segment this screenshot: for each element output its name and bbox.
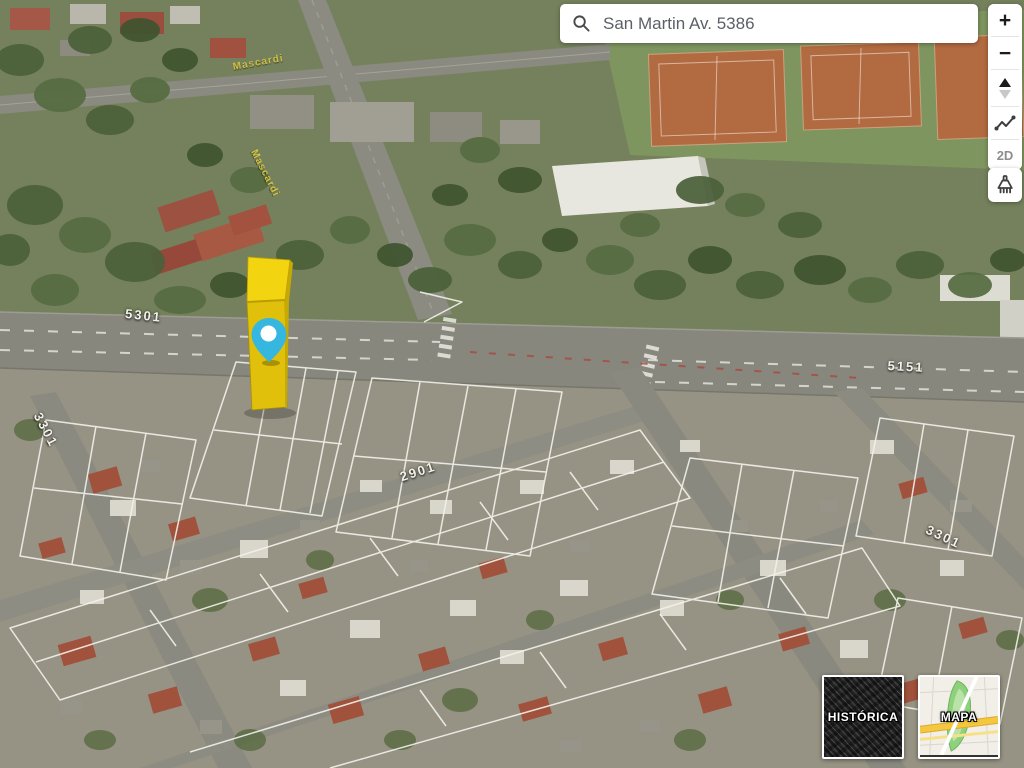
map-controls-panel: + − 2D xyxy=(988,4,1022,170)
map-button-label: MAPA xyxy=(920,677,998,757)
tilt-button[interactable] xyxy=(988,70,1022,106)
triangle-down-icon xyxy=(999,90,1011,99)
tilt-arrows-icon xyxy=(999,78,1011,99)
zoom-out-button[interactable]: − xyxy=(988,37,1022,69)
search-bar xyxy=(560,4,978,43)
clear-drawing-button[interactable] xyxy=(988,168,1022,202)
broom-icon xyxy=(994,175,1016,196)
map-basemap-button[interactable]: MAPA xyxy=(918,675,1000,759)
view-2d-button[interactable]: 2D xyxy=(988,140,1022,170)
polyline-icon xyxy=(994,114,1016,132)
satellite-map-canvas[interactable] xyxy=(0,0,1024,768)
search-input[interactable] xyxy=(601,13,966,35)
historic-imagery-button[interactable]: HISTÓRICA xyxy=(822,675,904,759)
search-icon xyxy=(572,14,591,33)
elevation-profile-button[interactable] xyxy=(988,107,1022,139)
street-number-label-5151: 5151 xyxy=(887,358,925,375)
zoom-in-button[interactable]: + xyxy=(988,4,1022,36)
map-viewport[interactable]: 5301 3301 2901 5151 3301 Mascardi Mascar… xyxy=(0,0,1024,768)
historic-button-label: HISTÓRICA xyxy=(824,677,902,757)
triangle-up-icon xyxy=(999,78,1011,87)
